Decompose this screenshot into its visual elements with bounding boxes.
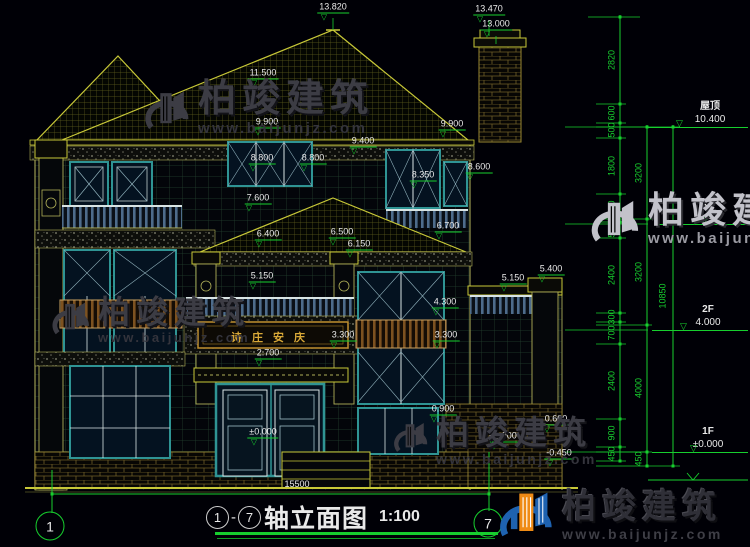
elevation-mark: 6.150▽ [346,240,373,259]
dimension-chain-label: 700 [608,325,617,340]
elevation-mark: 0.900▽ [430,405,457,424]
dimension-chain-label: 300 [608,309,617,324]
dimension-chain-label: 3200 [635,262,644,282]
elevation-mark: 11.500▽ [248,69,279,88]
elevation-mark: 6.400▽ [255,230,282,249]
dimension-chain-label: 3200 [635,163,644,183]
elevation-mark: 5.150▽ [500,274,527,293]
axis-bubble: 1 [36,512,65,541]
level-flag: 2F4.000▽ [652,330,748,331]
elevation-mark: 13.000▽ [480,20,512,39]
elevation-mark: 6.700▽ [435,222,462,241]
title-text: 轴立面图 [264,499,368,535]
dimension-chain-label: 2400 [608,371,617,391]
dimension-chain-label: 450 [635,451,644,466]
dimension-chain-label: 1800 [608,156,617,176]
elevation-mark: 0.600▽ [543,415,570,434]
level-flag: 屋顶10.400▽ [648,127,748,128]
title-scale: 1:100 [379,508,420,526]
elevation-mark: 9.400▽ [350,137,377,156]
elevation-mark: 5.400▽ [538,265,565,284]
annotation-layer: 13.820▽13.470▽13.000▽11.500▽9.900▽9.900▽… [0,0,750,547]
elevation-mark: ±0.000▽ [487,432,518,451]
dimension-chain-label: 600 [608,105,617,120]
title-underline-thick [215,532,498,535]
title-dash: - [231,509,236,526]
dimension-chain-label: 2820 [608,50,617,70]
elevation-mark: 5.150▽ [249,272,276,291]
dimension-chain-label: 500 [608,122,617,137]
dimension-chain-label: 10850 [659,283,668,308]
cad-viewport: 诗庄安庆 [0,0,750,547]
elevation-mark: 8.800▽ [249,154,276,173]
axis-bubble-end: 7 [238,506,261,529]
elevation-mark: ±0.000▽ [247,428,278,447]
elevation-mark: 7.600▽ [245,194,272,213]
dimension-chain-label: 900 [608,425,617,440]
elevation-mark: 15500 [282,480,311,490]
axis-bubble-start: 1 [206,506,229,529]
elevation-mark: 8.800▽ [300,154,327,173]
dimension-chain-label: 500 [608,222,617,237]
elevation-mark: 9.900▽ [439,120,466,139]
elevation-mark: 9.900▽ [254,118,281,137]
elevation-mark: 13.820▽ [317,3,349,22]
dimension-chain-label: 900 [608,200,617,215]
level-flag: 3F7.200▽ [655,224,748,225]
dimension-chain-label: 4000 [635,378,644,398]
elevation-mark: -0.450▽ [544,449,574,468]
level-flag: 1F±0.000▽ [652,452,748,453]
dimension-chain-label: 2400 [608,265,617,285]
elevation-mark: 4.300▽ [432,298,459,317]
drawing-title: 1 - 7 轴立面图 1:100 [206,502,420,532]
elevation-mark: 3.300▽ [330,331,357,350]
elevation-mark: 3.300▽ [433,331,460,350]
title-underline-thin [217,538,495,539]
elevation-mark: 2.700▽ [255,349,282,368]
elevation-mark: 8.600▽ [466,163,493,182]
elevation-mark: 8.350▽ [410,171,437,190]
dimension-chain-label: 450 [608,446,617,461]
